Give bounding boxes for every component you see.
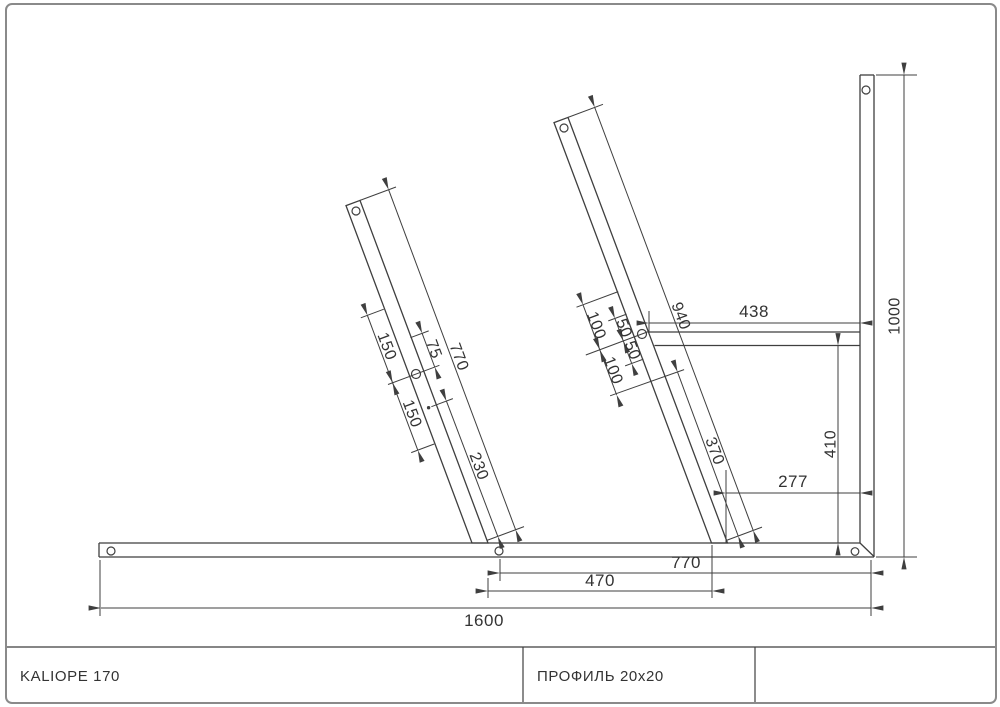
dim-left-lower-spacing: 150 [399,398,425,430]
ext-left-beam-st-75 [410,331,428,338]
base-mid-hole [495,547,503,555]
ext-left-beam-st-150u [361,309,384,318]
post-top-hole [862,86,870,94]
dim-right-upper-100: 100 [583,309,609,341]
dim-base-overall: 1600 [464,611,504,630]
ext-left-beam-st-150l [411,444,434,453]
ext-right-beam-st-100u [577,292,619,308]
dim-left-mid-spacing: 75 [422,338,445,362]
base-left-hole [107,547,115,555]
dim-right-beam-length: 940 [668,300,694,332]
dim-left-upper-spacing: 150 [374,330,400,362]
ext-left-beam-bottom [487,527,524,541]
left-beam-top-hole [352,207,360,215]
left-beam-center-mark [427,406,430,409]
dimension-labels: 770 230 150 150 75 940 370 50 50 100 100… [374,297,904,630]
technical-drawing: 770 230 150 150 75 940 370 50 50 100 100… [0,0,1000,707]
dim-top-rail-length: 438 [739,302,769,321]
dim-base-beam-gap: 470 [585,571,615,590]
dim-base-right-segment: 770 [671,553,701,572]
dimension-lines [101,75,904,608]
right-beam-top-hole [560,124,568,132]
title-block: KALIOPE 170 ПРОФИЛЬ 20x20 [7,647,995,702]
dim-right-lower-100: 100 [600,354,626,386]
ext-left-beam-st-0 [388,365,439,384]
dim-post-height: 1000 [887,297,904,335]
base-post-miter [860,543,874,557]
dim-beam-to-post: 277 [778,472,808,491]
dim-rail-to-base: 410 [823,430,840,458]
dim-right-bottom-segment: 370 [701,435,727,467]
base-right-hole [851,548,859,556]
title-block-profile: ПРОФИЛЬ 20x20 [537,668,664,685]
title-block-model: KALIOPE 170 [20,668,120,685]
ext-right-beam-bottom [727,527,763,540]
dim-left-beam-length: 770 [446,341,472,373]
sheet-border [6,4,996,703]
